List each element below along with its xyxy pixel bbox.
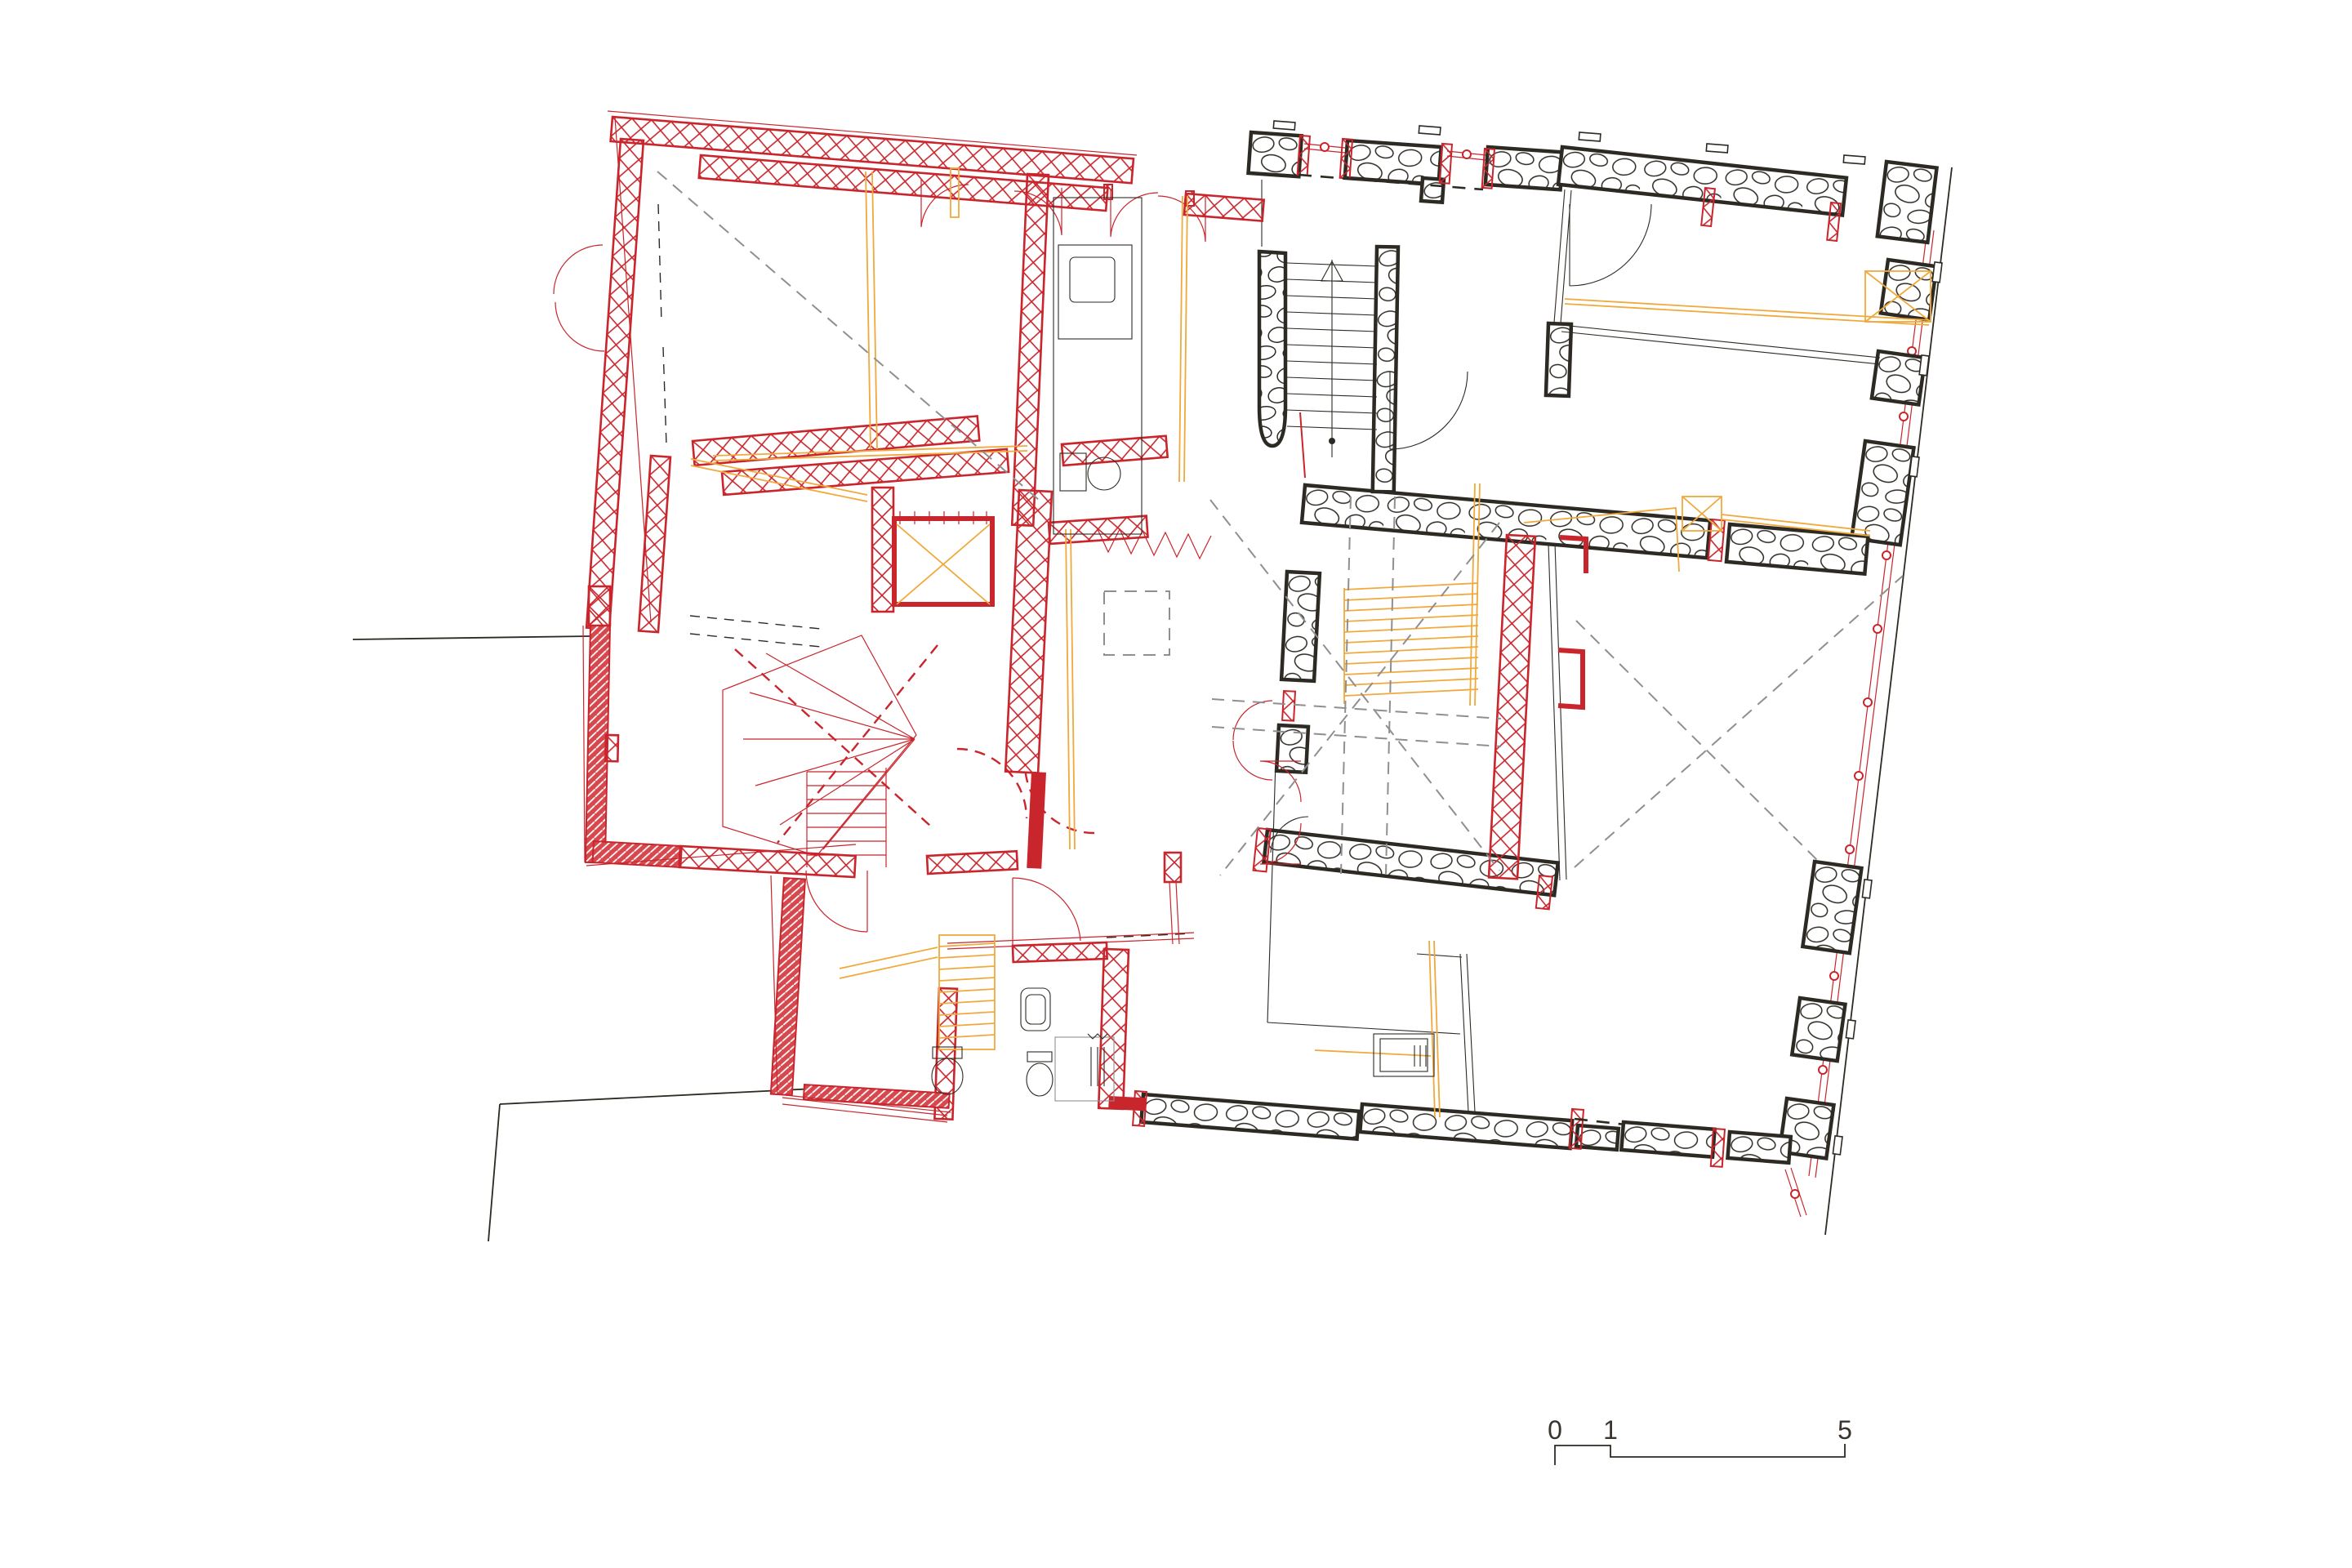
bathroom-fixtures	[932, 988, 1114, 1101]
elevator	[894, 511, 992, 604]
scale-label-5: 5	[1837, 1415, 1852, 1445]
scale-label-1: 1	[1603, 1415, 1618, 1445]
opening-jambs	[1133, 136, 1841, 1167]
scale-label-0: 0	[1548, 1415, 1562, 1445]
fixtures	[932, 198, 1434, 1101]
scale-bar: 0 1 5	[1548, 1415, 1852, 1465]
red-door-swings	[554, 180, 1301, 946]
main-staircase	[1259, 247, 1398, 492]
kitchen-counter	[1053, 198, 1142, 534]
right-facade-line	[1825, 167, 1952, 1235]
drawing-sheet: 0 1 5	[0, 0, 2352, 1568]
red-niches	[1558, 537, 1586, 707]
floor-plan-drawing: 0 1 5	[0, 0, 2352, 1568]
interior-wall-faces	[1262, 180, 1880, 1112]
red-winder-stair	[723, 635, 938, 867]
